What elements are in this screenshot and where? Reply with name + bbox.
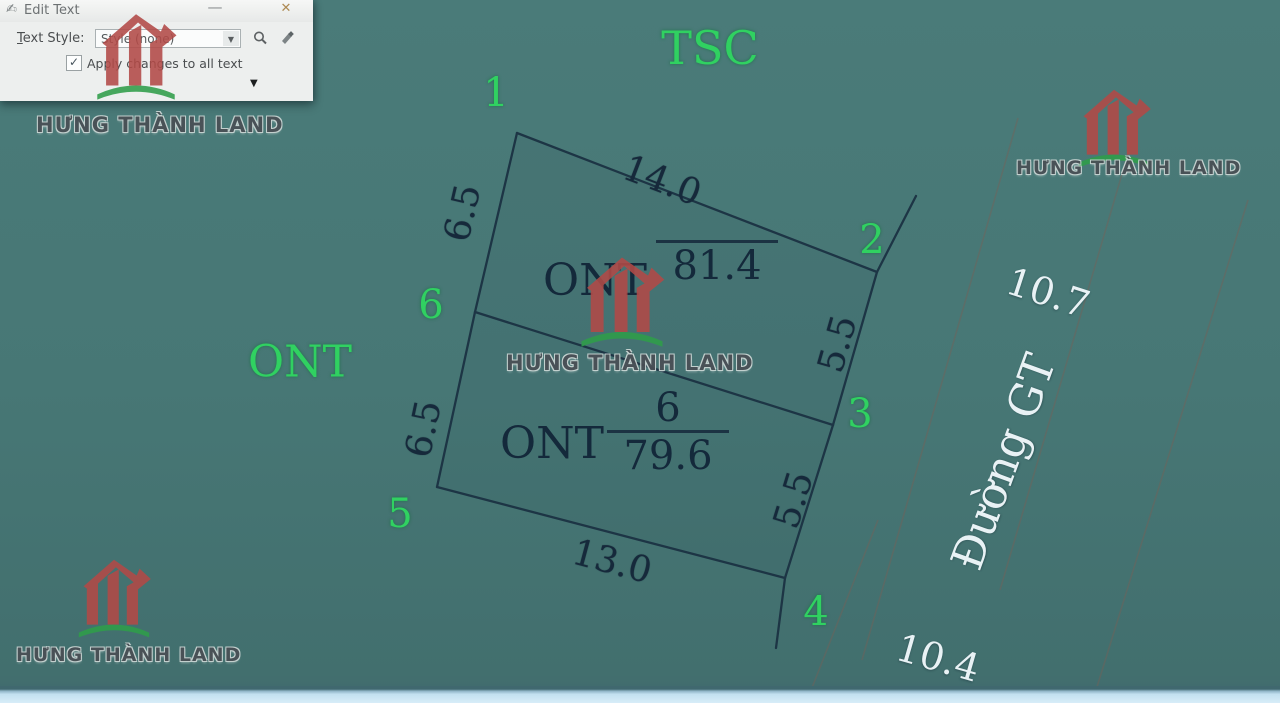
zone-label-tsc: TSC (661, 21, 758, 75)
search-icon[interactable] (252, 30, 269, 47)
bottom-bar (0, 686, 1280, 703)
corner-label-4: 4 (803, 589, 828, 635)
parcel2-landtype: ONT (500, 418, 604, 469)
brand-text-topleft: HƯNG THÀNH LAND (36, 113, 284, 137)
brand-text-center: HƯNG THÀNH LAND (506, 351, 754, 375)
parcel1-fraction: 81.4 (656, 238, 778, 287)
expander-arrow-icon[interactable]: ▼ (250, 78, 258, 89)
minimize-button[interactable]: — (205, 0, 225, 16)
edit-text-icon: ✍ (6, 2, 17, 17)
close-button[interactable]: ✕ (276, 1, 296, 16)
parcel2-fraction: 6 79.6 (607, 388, 729, 477)
parcel2-area: 79.6 (607, 435, 729, 477)
parcel2-lot-number: 6 (607, 388, 729, 428)
ht-logo-center (576, 243, 668, 353)
text-style-label: Text Style: (17, 31, 84, 46)
corner-label-1: 1 (483, 70, 508, 116)
tool-icon[interactable] (279, 30, 295, 46)
parcel1-area: 81.4 (656, 245, 778, 287)
corner-label-2: 2 (859, 217, 884, 263)
corner-label-3: 3 (847, 391, 872, 437)
zone-label-ont-left: ONT (248, 337, 352, 388)
ht-logo-topleft (92, 0, 180, 106)
corner-label-5: 5 (387, 491, 412, 537)
screenshot-stage: TSC ONT 1 2 3 4 5 6 14.0 6.5 6.5 5.5 5.5… (0, 0, 1280, 703)
brand-text-bottomleft: HƯNG THÀNH LAND (16, 644, 241, 666)
dialog-title: Edit Text (24, 3, 80, 18)
checkbox-check-icon: ✓ (69, 55, 79, 69)
brand-text-topright: HƯNG THÀNH LAND (1016, 157, 1241, 179)
corner-label-6: 6 (418, 282, 443, 328)
combo-dropdown-icon[interactable]: ▼ (223, 31, 239, 46)
text-style-label-rest: ext Style: (23, 31, 85, 46)
ht-logo-bottomleft (74, 547, 154, 643)
apply-changes-checkbox[interactable]: ✓ (66, 55, 82, 71)
